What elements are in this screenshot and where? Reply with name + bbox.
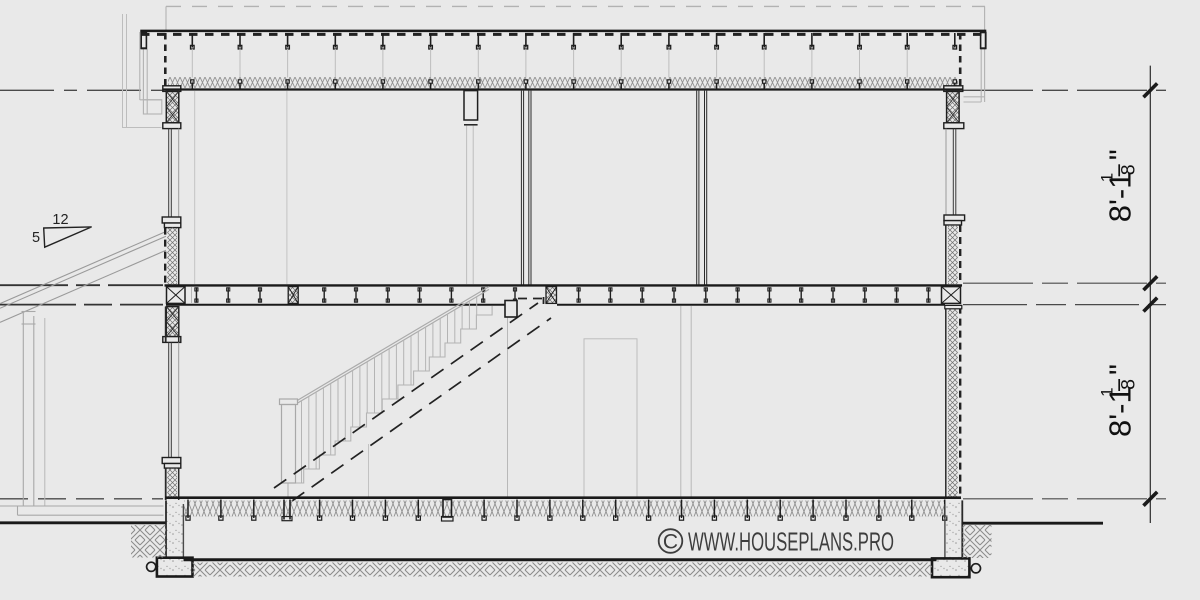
svg-text:": " (1103, 149, 1138, 160)
svg-text:12: 12 (52, 212, 68, 228)
svg-text:C: C (663, 531, 678, 554)
svg-text:5: 5 (32, 230, 40, 246)
svg-text:8: 8 (1118, 164, 1140, 175)
svg-text:8: 8 (1118, 379, 1140, 390)
svg-text:1: 1 (1098, 173, 1117, 182)
svg-text:WWW.HOUSEPLANS.PRO: WWW.HOUSEPLANS.PRO (688, 527, 894, 557)
svg-text:": " (1103, 364, 1138, 375)
svg-text:1: 1 (1098, 387, 1117, 396)
